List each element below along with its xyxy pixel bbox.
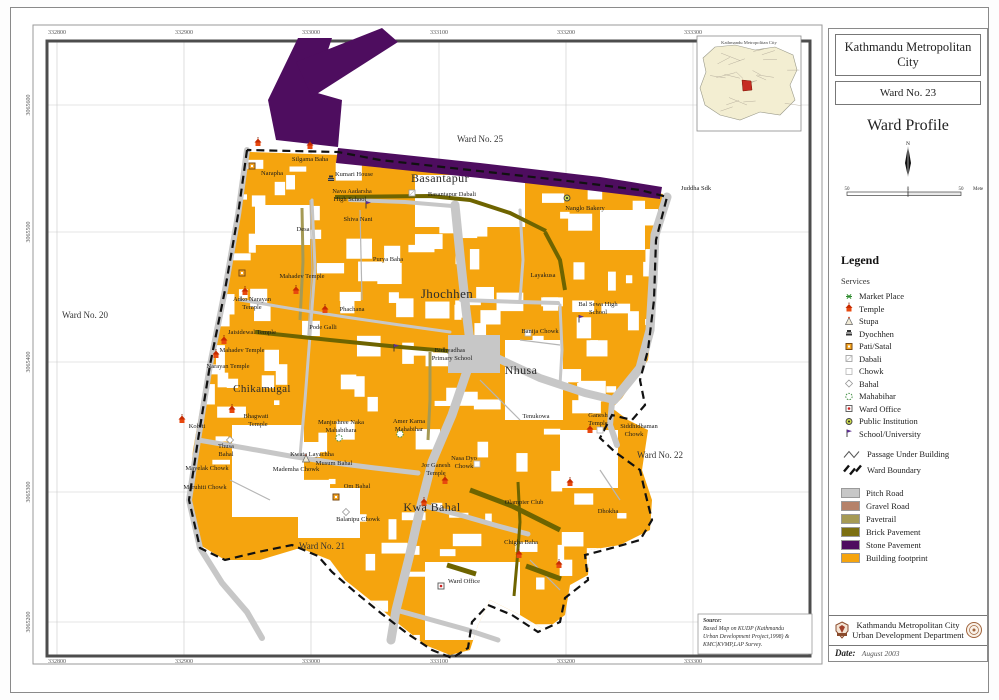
legend: Legend Services Market PlaceTempleStupaD…: [841, 253, 977, 564]
courtyard: [477, 442, 488, 458]
public-institution-icon: [841, 415, 859, 428]
courtyard: [573, 262, 584, 279]
place-label: Phachana: [340, 306, 365, 313]
legend-item-label: Market Place: [859, 291, 904, 301]
place-label: Temple: [242, 304, 262, 311]
temple-icon: [846, 304, 853, 308]
legend-item-label: School/University: [859, 429, 921, 439]
ward-office-icon: [440, 585, 443, 588]
legend-item-label: Chowk: [859, 366, 884, 376]
place-label: Maruhiti Chowk: [183, 484, 227, 491]
place-label: Narapha: [261, 170, 283, 177]
courtyard: [366, 554, 376, 571]
legend-item-label: Bahal: [859, 379, 879, 389]
place-label: Chowk: [625, 431, 645, 438]
udd-seal-logo: [965, 621, 983, 639]
chowk-icon: [597, 427, 603, 433]
legend-area-label: Stone Pavement: [866, 540, 921, 550]
axis-tick-label: 333200: [557, 30, 575, 36]
courtyard: [474, 399, 501, 409]
courtyard: [633, 201, 645, 222]
market-icon: [841, 290, 859, 303]
courtyard: [536, 577, 544, 589]
courtyard: [264, 350, 279, 371]
legend-item-label: Ward Boundary: [867, 465, 921, 475]
legend-item-label: Pati/Satal: [859, 341, 892, 351]
road-plaza: [448, 335, 500, 373]
org-line1: Kathmandu Metropolitan City: [851, 620, 965, 631]
axis-tick-label: 333000: [302, 659, 320, 665]
courtyard: [551, 471, 562, 492]
place-label: Kwata Layachha: [290, 451, 334, 458]
courtyard: [218, 373, 229, 388]
courtyard: [317, 263, 344, 273]
legend-item: Passage Under Building: [841, 446, 977, 462]
place-label: Pode Galli: [309, 324, 337, 331]
axis-tick-label: 3065500: [26, 222, 32, 243]
axis-tick-label: 3065300: [26, 482, 32, 503]
axis-tick-label: 333300: [684, 659, 702, 665]
legend-area-item: Stone Pavement: [841, 538, 977, 551]
place-label: Chigha Baha: [504, 539, 538, 546]
stupa-icon: [848, 316, 850, 318]
ward-label: Ward No. 25: [457, 134, 504, 144]
color-swatch: [841, 514, 860, 524]
courtyard: [562, 532, 584, 546]
legend-item-label: Temple: [859, 304, 884, 314]
ward-label: Ward No. 20: [62, 310, 109, 320]
legend-area-item: Pitch Road: [841, 486, 977, 499]
source-text-line: Source:: [703, 618, 722, 624]
axis-tick-label: 333100: [430, 30, 448, 36]
courtyard: [560, 212, 569, 219]
temple-icon: [557, 565, 562, 569]
legend-group-services: Services: [841, 276, 977, 286]
place-label: Narayan Temple: [207, 363, 250, 370]
courtyard: [290, 482, 309, 492]
courtyard: [249, 234, 256, 253]
panel-footer: Kathmandu Metropolitan City Urban Develo…: [829, 615, 987, 661]
temple-icon: [443, 481, 448, 485]
legend-area-label: Pavetrail: [866, 514, 896, 524]
legend-item: Dabali: [841, 353, 977, 366]
place-label: Jor Ganesh: [421, 462, 451, 469]
mahabihar-icon: [336, 435, 342, 441]
courtyard: [425, 302, 449, 319]
place-label: Adko Narayan: [233, 296, 272, 303]
courtyard: [246, 465, 274, 487]
courtyard: [590, 340, 598, 347]
place-label: Jaisidewal Temple: [228, 329, 276, 336]
mahabihar-icon: [841, 390, 859, 403]
chowk-icon: [841, 365, 859, 378]
ward-boundary-icon: [841, 464, 865, 477]
axis-tick-label: 3065200: [26, 612, 32, 633]
place-label: Mademha Chowk: [273, 466, 320, 473]
pati-icon: [335, 496, 337, 498]
pitch-road: [560, 305, 562, 385]
school-icon: [847, 430, 852, 433]
source-text-line: KMC|KVMP,LAP Survey.: [702, 642, 762, 648]
courtyard: [345, 533, 357, 538]
dyochhen-icon: [841, 327, 859, 340]
scale-seg-left: [847, 192, 908, 196]
scale-unit: Meters: [973, 187, 983, 192]
date-value: August 2003: [862, 649, 900, 658]
place-label: Purya Baha: [373, 256, 403, 263]
courtyard: [440, 549, 456, 556]
pati-icon: [251, 165, 253, 167]
org-text: Kathmandu Metropolitan City Urban Develo…: [851, 620, 965, 641]
courtyard: [537, 344, 562, 356]
temple-icon: [568, 483, 573, 487]
axis-tick-label: 332800: [48, 659, 66, 665]
place-label: Mahabihar: [395, 426, 424, 433]
place-label: Bahal: [218, 451, 233, 458]
legend-item: Pati/Satal: [841, 340, 977, 353]
courtyard: [275, 182, 285, 195]
courtyard: [212, 460, 230, 465]
courtyard: [271, 224, 292, 243]
place-label: Ganesh: [588, 412, 608, 419]
axis-tick-label: 333000: [302, 30, 320, 36]
courtyard: [274, 400, 279, 405]
kmc-crest-logo: [833, 621, 851, 639]
temple-icon: [243, 292, 248, 296]
place-label: Temple: [248, 421, 268, 428]
legend-item: Stupa: [841, 315, 977, 328]
place-label: Manjushree Naka: [318, 419, 364, 426]
place-label: School: [589, 309, 607, 316]
courtyard: [367, 397, 377, 412]
ward-office-icon: [848, 407, 851, 410]
courtyard: [454, 305, 461, 320]
axis-tick-label: 333100: [430, 659, 448, 665]
legend-area-label: Pitch Road: [866, 488, 904, 498]
courtyard: [289, 166, 306, 171]
courtyard: [286, 175, 295, 189]
place-label: Tenukowa: [523, 413, 550, 420]
color-swatch: [841, 488, 860, 498]
profile-title: Ward Profile: [829, 117, 987, 135]
place-label: Basantapur Dabali: [428, 191, 476, 198]
temple-icon: [222, 341, 227, 345]
legend-item: Bahal: [841, 378, 977, 391]
public-institution-icon: [848, 420, 850, 422]
axis-tick-label: 333300: [684, 30, 702, 36]
area-label: Kwa Bahal: [403, 500, 461, 514]
ward-number-box: Ward No. 23: [835, 81, 981, 105]
chowk-icon: [846, 368, 852, 374]
mahabihar-icon: [846, 393, 852, 399]
area-label: Jhochhen: [421, 286, 473, 301]
scale-right: 50: [959, 187, 965, 192]
pati-icon: [241, 272, 243, 274]
courtyard: [626, 275, 632, 283]
courtyard: [568, 214, 592, 231]
courtyard: [446, 593, 456, 602]
courtyard: [574, 493, 593, 504]
legend-item: Ward Boundary: [841, 462, 977, 478]
legend-item-label: Dyochhen: [859, 329, 894, 339]
courtyard: [354, 376, 364, 397]
courtyard: [617, 513, 626, 518]
place-label: Nava Aadarsha: [332, 188, 372, 195]
courtyard: [415, 234, 443, 249]
place-label: Om Bahal: [344, 483, 371, 490]
ward-label: Ward No. 21: [299, 541, 345, 551]
temple-icon: [294, 291, 299, 295]
legend-item-label: Dabali: [859, 354, 882, 364]
temple-icon: [841, 302, 859, 315]
city-title: Kathmandu Metropolitan City: [845, 40, 972, 69]
date-row: Date: August 2003: [829, 646, 987, 661]
legend-area-item: Brick Pavement: [841, 525, 977, 538]
place-label: Chowk: [455, 463, 475, 470]
legend-item-label: Stupa: [859, 316, 878, 326]
source-text-line: Urban Development Project,1998) &: [703, 633, 790, 640]
place-label: Bal Sewa High: [578, 301, 618, 308]
place-label: Thusa: [218, 443, 234, 450]
legend-item: Mahabihar: [841, 390, 977, 403]
temple-icon: [517, 555, 522, 559]
area-label: Chikamugal: [233, 383, 291, 395]
courtyard: [389, 292, 399, 303]
place-label: Kumari House: [335, 171, 373, 178]
place-label: Bhagwati: [244, 413, 269, 420]
legend-lines-list: Passage Under BuildingWard Boundary: [841, 446, 977, 478]
ward-map-svg: 3328003328003329003329003330003330003331…: [0, 0, 828, 700]
legend-item-label: Public Institution: [859, 416, 918, 426]
pati-icon: [333, 494, 339, 500]
source-text-line: Based Map on KUDP (Kathmandu: [703, 625, 784, 632]
legend-item: Ward Office: [841, 403, 977, 416]
passage-icon: [844, 451, 859, 457]
area-label: Basantapur: [411, 171, 469, 185]
place-label: Mahadev Temple: [219, 347, 264, 354]
axis-tick-label: 3065400: [26, 352, 32, 373]
scale-bar: 50 0 50 Meters: [833, 183, 983, 201]
color-swatch: [841, 553, 860, 563]
legend-area-item: Gravel Road: [841, 499, 977, 512]
org-box: Kathmandu Metropolitan City Urban Develo…: [829, 615, 987, 646]
legend-heading: Legend: [841, 253, 977, 268]
courtyard: [346, 239, 372, 259]
legend-area-item: Pavetrail: [841, 512, 977, 525]
legend-item-label: Passage Under Building: [867, 449, 949, 459]
dabali-icon: [841, 352, 859, 365]
temple-icon: [230, 410, 235, 414]
axis-tick-label: 332800: [48, 30, 66, 36]
scale-left: 50: [845, 187, 851, 192]
place-label: Juddha Sdk: [681, 185, 712, 192]
color-swatch: [841, 527, 860, 537]
legend-item: Market Place: [841, 290, 977, 303]
axis-tick-label: 3065600: [26, 95, 32, 116]
school-icon: [841, 427, 859, 440]
place-label: Shiva Nani: [343, 216, 372, 223]
legend-item: Dyochhen: [841, 328, 977, 341]
ward-number: Ward No. 23: [880, 87, 936, 99]
courtyard: [628, 311, 639, 330]
courtyard: [216, 436, 229, 441]
dabali-icon: [409, 190, 415, 196]
courtyard: [382, 543, 408, 554]
color-swatch: [841, 540, 860, 550]
place-label: Banija Chowk: [521, 328, 559, 335]
temple-icon: [256, 143, 261, 147]
place-label: Mahadev Temple: [279, 273, 324, 280]
place-label: Kohiti: [189, 423, 206, 430]
stupa-icon: [841, 315, 859, 328]
bahal-icon: [846, 380, 853, 387]
courtyard: [544, 429, 560, 435]
legend-item: Public Institution: [841, 415, 977, 428]
dyochhen-icon: [847, 330, 851, 332]
courtyard: [470, 249, 479, 269]
pati-icon: [249, 163, 255, 169]
place-label: Nasa Dyo: [451, 455, 477, 462]
pati-icon: [841, 340, 859, 353]
courtyard: [341, 375, 357, 390]
place-label: Desa: [297, 226, 310, 233]
legend-areas-list: Pitch RoadGravel RoadPavetrailBrick Pave…: [841, 486, 977, 564]
courtyard: [252, 195, 266, 206]
legend-area-item: Building footprint: [841, 551, 977, 564]
dyochhen-icon: [329, 176, 333, 178]
dyochhen-icon: [328, 178, 334, 181]
place-label: Mayelak Chowk: [185, 465, 229, 472]
place-label: Mahabihara: [325, 427, 356, 434]
info-panel: Kathmandu Metropolitan City Ward No. 23 …: [828, 28, 988, 662]
legend-item: Temple: [841, 303, 977, 316]
mahabihar-icon: [336, 435, 342, 441]
place-label: High School: [334, 196, 367, 203]
pati-icon: [848, 345, 850, 347]
ward-boundary-icon: [844, 465, 849, 471]
place-label: Amer Karna: [393, 418, 425, 425]
pati-icon: [239, 270, 245, 276]
courtyard: [516, 453, 527, 472]
place-label: Nanglo Bakery: [565, 205, 605, 212]
place-label: Temple: [426, 470, 446, 477]
area-label: Nhusa: [505, 363, 538, 377]
courtyard: [318, 433, 327, 453]
stupa-icon: [846, 317, 853, 324]
place-label: Musum Bahal: [316, 460, 353, 467]
temple-icon: [180, 420, 185, 424]
temple-icon: [308, 146, 313, 150]
inset-highlight-ward: [742, 80, 752, 91]
axis-tick-label: 333200: [557, 659, 575, 665]
legend-item-label: Ward Office: [859, 404, 901, 414]
legend-item: Chowk: [841, 365, 977, 378]
passage-icon: [841, 448, 865, 461]
courtyard: [233, 253, 250, 260]
date-label: Date:: [835, 648, 856, 658]
courtyard: [303, 516, 318, 537]
courtyard: [480, 310, 500, 324]
place-label: Dhokha: [598, 508, 619, 515]
scale-seg-right: [908, 192, 961, 196]
org-line2: Urban Development Department: [851, 630, 965, 641]
place-label: Ward Office: [448, 578, 480, 585]
legend-area-label: Gravel Road: [866, 501, 909, 511]
bahal-icon: [841, 377, 859, 390]
legend-services-list: Market PlaceTempleStupaDyochhenPati/Sata…: [841, 290, 977, 440]
place-label: Siddhidhaman: [620, 423, 658, 430]
axis-tick-label: 332900: [175, 659, 193, 665]
ward-boundary-icon: [856, 465, 861, 471]
public-institution-icon: [566, 197, 568, 199]
color-swatch: [841, 501, 860, 511]
place-label: Primary School: [432, 355, 473, 362]
ward-office-icon: [841, 402, 859, 415]
temple-icon: [214, 355, 219, 359]
courtyard: [453, 534, 482, 546]
ward-label: Ward No. 22: [637, 450, 683, 460]
place-label: Bidhyadhas: [435, 347, 466, 354]
temple-icon: [588, 430, 593, 434]
temple-icon: [847, 308, 852, 312]
chowk-icon: [597, 427, 603, 433]
axis-tick-label: 332900: [175, 30, 193, 36]
courtyard: [606, 386, 616, 392]
ward-boundary-icon: [850, 468, 855, 474]
place-label: Balanipu Chowk: [336, 516, 381, 523]
ward-office-icon: [438, 583, 444, 589]
courtyard: [542, 193, 564, 202]
place-label: Layakusa: [531, 272, 556, 279]
legend-area-label: Building footprint: [866, 553, 928, 563]
north-arrow: N: [838, 137, 978, 181]
inset-title: Kathmandu Metropolitan City: [721, 40, 777, 45]
courtyard: [389, 519, 397, 539]
public-institution-icon: [564, 195, 570, 201]
courtyard: [608, 272, 616, 291]
legend-item: School/University: [841, 428, 977, 441]
place-label: Olampier Club: [505, 499, 544, 506]
place-label: Silgama Baha: [292, 156, 328, 163]
legend-item-label: Mahabihar: [859, 391, 896, 401]
city-title-box: Kathmandu Metropolitan City: [835, 34, 981, 76]
legend-area-label: Brick Pavement: [866, 527, 921, 537]
dyochhen-icon: [846, 333, 852, 336]
place-label: Temple: [588, 420, 608, 427]
temple-icon: [323, 310, 328, 314]
